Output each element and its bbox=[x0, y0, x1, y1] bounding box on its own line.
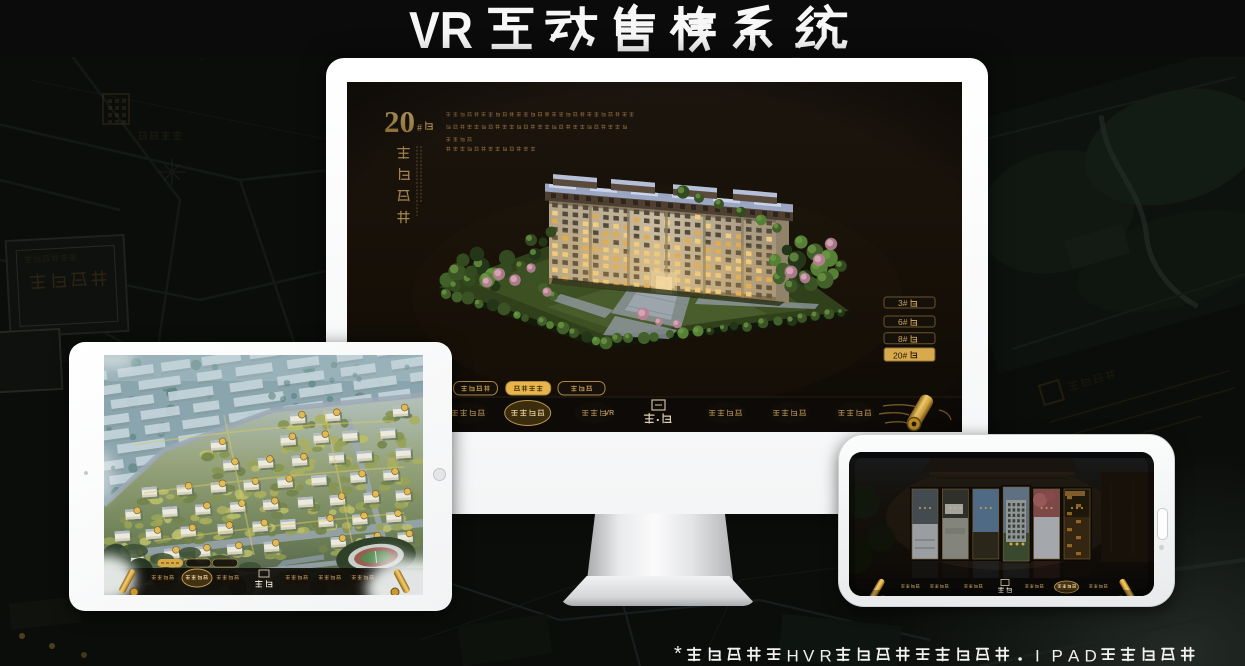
svg-text:V: V bbox=[803, 647, 815, 666]
svg-text:H: H bbox=[787, 647, 799, 666]
svg-text:R: R bbox=[820, 647, 832, 666]
svg-text:*: * bbox=[674, 643, 682, 665]
svg-text:P: P bbox=[1052, 647, 1063, 666]
svg-text:VR: VR bbox=[409, 2, 473, 60]
svg-text:I: I bbox=[1035, 647, 1040, 666]
svg-text:A: A bbox=[1068, 647, 1080, 666]
svg-text:D: D bbox=[1085, 647, 1097, 666]
